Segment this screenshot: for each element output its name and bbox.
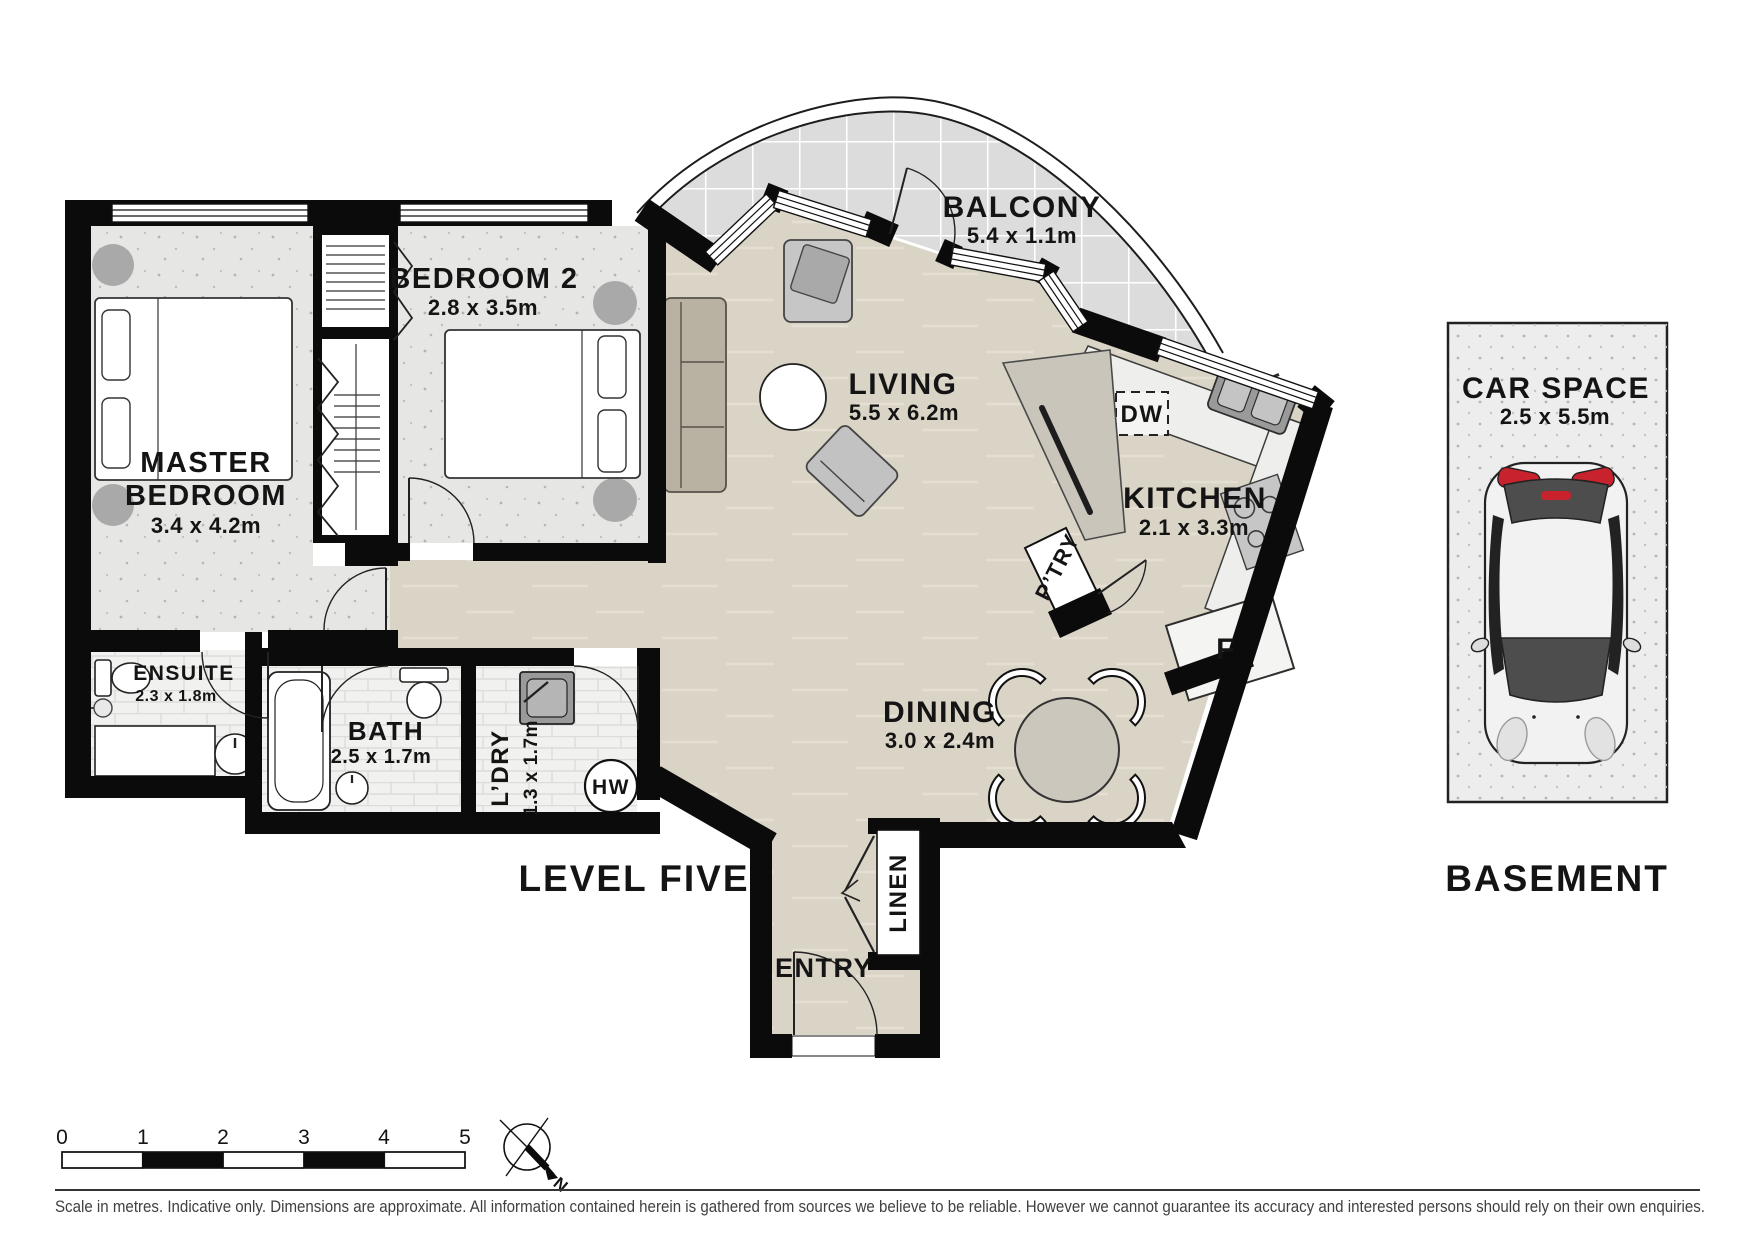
window: [112, 204, 308, 222]
bedroom2-dims: 2.8 x 3.5m: [428, 295, 538, 320]
scale-tick: 1: [137, 1126, 149, 1149]
compass: N: [500, 1118, 571, 1196]
north-needle: [527, 1147, 547, 1168]
bedside-table: [593, 281, 637, 325]
sofa: [664, 298, 726, 492]
laundry-dims: 1.3 x 1.7m: [521, 720, 542, 816]
car-space-dims: 2.5 x 5.5m: [1500, 404, 1610, 429]
dishwasher-label: DW: [1121, 401, 1164, 428]
level-title: LEVEL FIVE: [518, 858, 749, 899]
master-label-line2: BEDROOM: [125, 480, 287, 512]
hot-water-label: HW: [592, 776, 630, 799]
kitchen-dims: 2.1 x 3.3m: [1139, 515, 1249, 540]
ensuite-dims: 2.3 x 1.8m: [135, 688, 217, 705]
master-label-line1: MASTER: [140, 447, 271, 479]
bedside-table: [92, 244, 134, 286]
bedside-table: [593, 478, 637, 522]
bath-label: BATH: [348, 716, 424, 746]
laundry-sink: [520, 672, 574, 724]
north-needle-tip: [543, 1160, 558, 1180]
bath-basin: [336, 772, 368, 804]
bathtub: [268, 672, 330, 810]
floor-plan-page: BALCONY 5.4 x 1.1m LIVING 5.5 x 6.2m KIT…: [0, 0, 1755, 1241]
car-space-label: CAR SPACE: [1462, 372, 1650, 405]
scale-tick: 5: [459, 1126, 471, 1149]
scale-tick: 4: [378, 1126, 390, 1149]
disclaimer-text: Scale in metres. Indicative only. Dimens…: [55, 1198, 1705, 1216]
balcony-label: BALCONY: [943, 191, 1102, 224]
dining-dims: 3.0 x 2.4m: [885, 728, 995, 753]
scale-bar: 0 1 2 3 4 5: [56, 1126, 471, 1168]
floor-plan-canvas: BALCONY 5.4 x 1.1m LIVING 5.5 x 6.2m KIT…: [0, 0, 1755, 1241]
entry-label: ENTRY: [775, 953, 873, 983]
linen-label: LINEN: [885, 853, 912, 933]
window: [400, 204, 588, 222]
living-label: LIVING: [848, 368, 957, 401]
scale-tick: 2: [217, 1126, 229, 1149]
basement-title: BASEMENT: [1445, 858, 1669, 899]
ensuite-label: ENSUITE: [133, 662, 235, 685]
bath-dims: 2.5 x 1.7m: [331, 746, 432, 768]
living-dims: 5.5 x 6.2m: [849, 400, 959, 425]
master-dims: 3.4 x 4.2m: [151, 513, 261, 538]
scale-tick: 0: [56, 1126, 68, 1149]
dining-label: DINING: [883, 696, 997, 729]
balcony-dims: 5.4 x 1.1m: [967, 223, 1077, 248]
laundry-label: L’DRY: [487, 729, 514, 806]
fridge-label: F: [1216, 633, 1236, 666]
round-side-table: [760, 364, 826, 430]
scale-tick: 3: [298, 1126, 310, 1149]
car-space: CAR SPACE 2.5 x 5.5m: [1448, 323, 1667, 802]
loveseat: [784, 240, 852, 322]
kitchen-label: KITCHEN: [1123, 482, 1267, 515]
car-illustration: [1469, 463, 1642, 764]
bedroom2-label: BEDROOM 2: [389, 263, 578, 295]
